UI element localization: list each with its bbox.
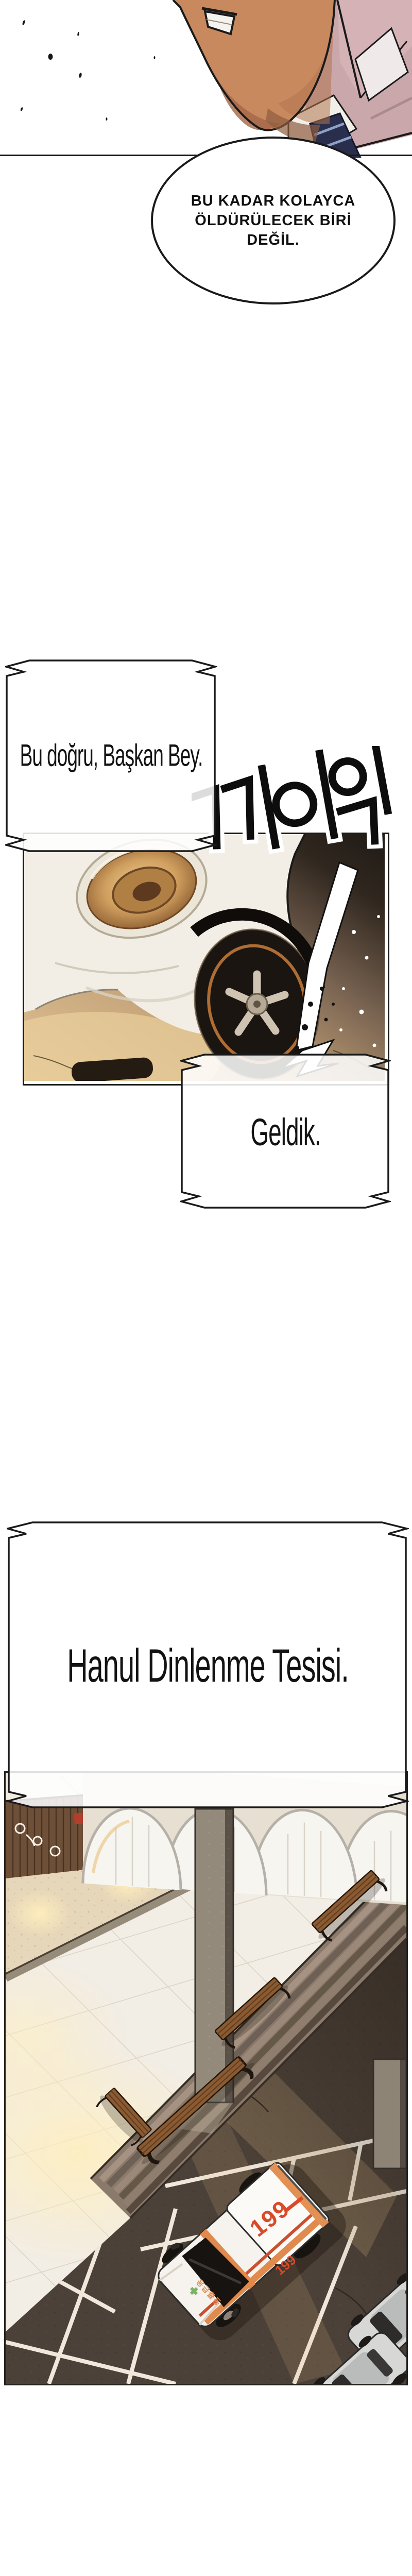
panel-face-closeup [0,0,412,158]
face-jaw [173,0,335,142]
rest-stop-art: 응급출동 199 199 [6,1773,406,2384]
bubble-line-1: BU KADAR KOLAYCA [191,191,355,211]
webtoon-page: BU KADAR KOLAYCA ÖLDÜRÜLECEK BİRİ DEĞİL.… [0,0,412,2576]
narration-box-3: Hanul Dinlenme Tesisi. [7,1521,409,1809]
panel-rest-stop: 응급출동 199 199 [4,1771,408,2385]
bubble-line-2: ÖLDÜRÜLECEK BİRİ [191,211,355,230]
sfx-screech-glyphs [192,746,412,875]
narration-box-2: Geldik. [180,1054,391,1210]
speech-bubble: BU KADAR KOLAYCA ÖLDÜRÜLECEK BİRİ DEĞİL. [151,137,396,304]
sfx-screech: 끼이익 [192,746,412,875]
speech-bubble-text: BU KADAR KOLAYCA ÖLDÜRÜLECEK BİRİ DEĞİL. [191,191,355,250]
ink-specks [20,20,156,121]
pillar-right [373,2059,406,2168]
bubble-line-3: DEĞİL. [191,230,355,250]
narration-box-2-text: Geldik. [250,1109,320,1154]
narration-box-3-text: Hanul Dinlenme Tesisi. [67,1638,349,1692]
narration-box-1-text: Bu doğru, Başkan Bey. [20,738,203,773]
narration-box-1: Bu doğru, Başkan Bey. [5,659,217,852]
face-closeup-art [0,0,412,158]
